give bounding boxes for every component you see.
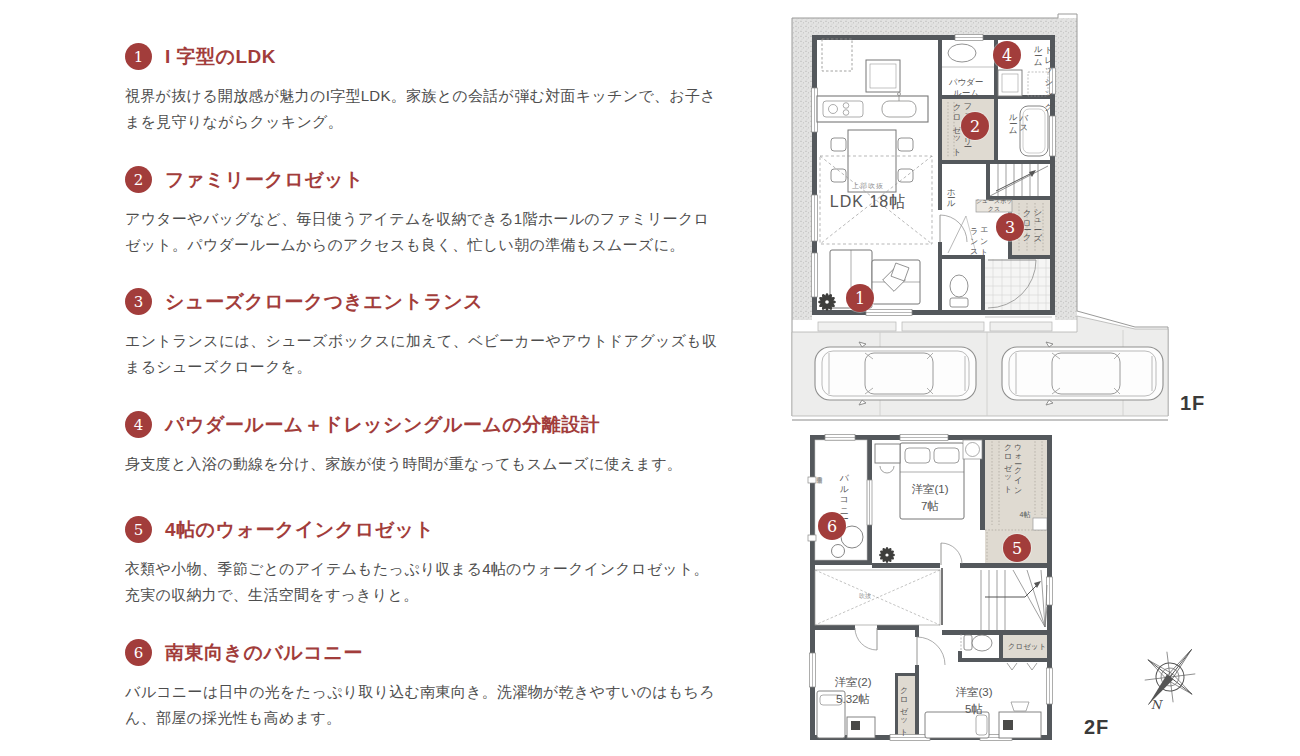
kitchen-counter <box>817 96 928 122</box>
room-label-shoes-cloak: シューズ クローク <box>1022 203 1043 261</box>
feature-number-badge: 4 <box>125 411 152 438</box>
washer-icon <box>998 70 1022 96</box>
feature-title: シューズクロークつきエントランス <box>165 289 483 315</box>
feature-title: I 字型のLDK <box>165 44 276 70</box>
feature-title: ファミリークロゼット <box>165 167 364 193</box>
room-label-dressing-room: ドレッシング ルーム <box>1033 40 1054 120</box>
plan-marker-2: 2 <box>961 112 989 140</box>
feature-title: パウダールーム＋ドレッシングルームの分離設計 <box>165 412 600 438</box>
feature-description: 視界が抜ける開放感が魅力のI字型LDK。家族との会話が弾む対面キッチンで、お子さ… <box>125 83 720 136</box>
plan-marker-1: 1 <box>846 284 874 312</box>
toilet-icon-2f <box>964 635 992 651</box>
toilet-icon <box>950 275 968 307</box>
floor-label-2f: 2F <box>1084 716 1109 739</box>
feature-item-4: 4 パウダールーム＋ドレッシングルームの分離設計 身支度と入浴の動線を分け、家族… <box>125 411 720 477</box>
feature-number-badge: 2 <box>125 166 152 193</box>
room-label-void: 吹抜 <box>845 592 885 600</box>
room-label-closet-right: クロゼット <box>1004 642 1050 652</box>
room-label-room1: 洋室(1) 7帖 <box>890 481 970 514</box>
plan-marker-4: 4 <box>993 41 1021 69</box>
feature-description: バルコニーは日中の光をたっぷり取り込む南東向き。洗濯物が乾きやすいのはもちろん、… <box>125 679 720 732</box>
plan-marker-3: 3 <box>996 213 1024 241</box>
powder-sink-icon <box>948 44 976 62</box>
room-label-wic-size: 4帖 <box>1010 510 1040 519</box>
room-label-entrance: エント ランス <box>968 222 988 266</box>
feature-title: 南東向きのバルコニー <box>165 640 363 666</box>
feature-sheet: 1 I 字型のLDK 視界が抜ける開放感が魅力のI字型LDK。家族との会話が弾む… <box>0 0 1300 756</box>
compass-icon <box>1130 632 1210 732</box>
floor-plan-1f <box>790 10 1200 422</box>
feature-number-badge: 1 <box>125 43 152 70</box>
compass-north-label: N <box>1146 697 1166 713</box>
feature-item-1: 1 I 字型のLDK 視界が抜ける開放感が魅力のI字型LDK。家族との会話が弾む… <box>125 43 720 136</box>
feature-item-3: 3 シューズクロークつきエントランス エントランスには、シューズボックスに加えて… <box>125 288 720 381</box>
room-label-ldk-note: 上部吹抜 <box>828 181 908 190</box>
feature-item-6: 6 南東向きのバルコニー バルコニーは日中の光をたっぷり取り込む南東向き。洗濯物… <box>125 639 720 732</box>
feature-number-badge: 3 <box>125 288 152 315</box>
room-label-closet-mid: クロゼット <box>898 681 908 741</box>
feature-description: 衣類や小物、季節ごとのアイテムもたっぷり収まる4帖のウォークインクロゼット。充実… <box>125 556 720 609</box>
plan-marker-5: 5 <box>1003 534 1031 562</box>
feature-title: 4帖のウォークインクロゼット <box>165 517 434 543</box>
feature-description: アウターやバッグなど、毎日使うアイテムを収納できる1階ホールのファミリークロゼッ… <box>125 206 720 259</box>
room-label-hall: ホール <box>946 182 957 234</box>
room-label-room3: 洋室(3) 5帖 <box>933 684 1015 717</box>
feature-description: エントランスには、シューズボックスに加えて、ベビーカーやアウトドアグッズも収まる… <box>125 328 720 381</box>
plan-marker-6: 6 <box>818 512 846 540</box>
feature-item-5: 5 4帖のウォークインクロゼット 衣類や小物、季節ごとのアイテムもたっぷり収まる… <box>125 516 720 609</box>
feature-description: 身支度と入浴の動線を分け、家族が使う時間が重なってもスムーズに使えます。 <box>125 451 720 477</box>
room-label-bath-room: バス ルーム <box>1008 108 1029 164</box>
room-label-walk-in-closet: ウォークイン クロゼット <box>1002 438 1022 516</box>
feature-item-2: 2 ファミリークロゼット アウターやバッグなど、毎日使うアイテムを収納できる1階… <box>125 166 720 259</box>
floor-label-1f: 1F <box>1180 392 1205 415</box>
room-label-ldk: LDK 18帖 <box>808 191 928 213</box>
room-label-shoes-box: シューズボックス <box>974 197 1014 213</box>
feature-number-badge: 6 <box>125 639 152 666</box>
feature-number-badge: 5 <box>125 516 152 543</box>
room-label-laundry-hardware: 物干金物 <box>816 472 823 518</box>
room-label-room2: 洋室(2) 5.32帖 <box>812 674 894 707</box>
room-label-balcony: バルコニー <box>838 467 849 553</box>
